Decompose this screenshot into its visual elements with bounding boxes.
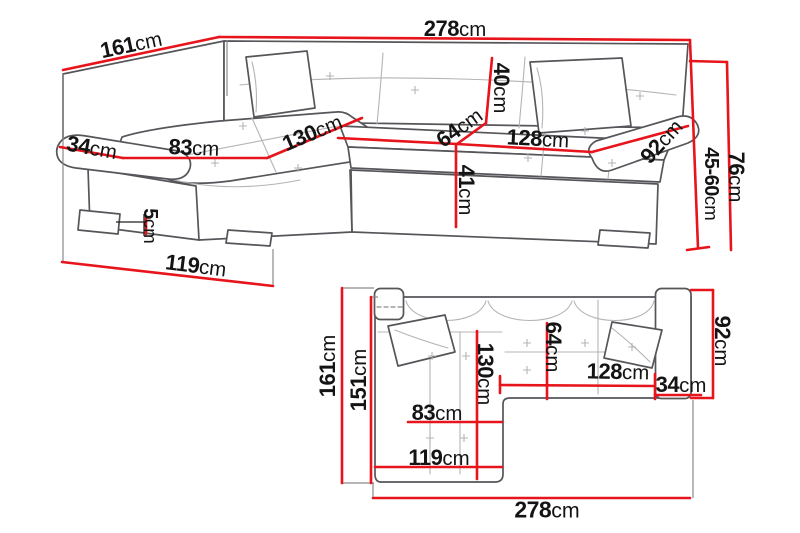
dim-label-total-width-plan: 278cm bbox=[514, 496, 579, 522]
dim-value: 64 bbox=[541, 322, 566, 347]
dim-label-chaise-length-plan: 130cm bbox=[473, 343, 498, 405]
dim-label-text: 45-60cm bbox=[700, 147, 722, 220]
dim-label-armrest-width-plan: 34cm bbox=[656, 372, 707, 397]
dim-unit: cm bbox=[88, 137, 119, 164]
dim-unit: cm bbox=[317, 335, 340, 362]
dim-value: 161 bbox=[98, 31, 138, 63]
dim-value: 92 bbox=[710, 316, 735, 340]
dim-unit: cm bbox=[551, 498, 580, 522]
dim-label-total-depth-plan: 161cm bbox=[315, 335, 340, 397]
dim-label-seat-front-height-perspective: 41cm bbox=[454, 165, 479, 216]
dim-unit: cm bbox=[701, 196, 722, 221]
dim-label-text: 34cm bbox=[656, 372, 707, 397]
dim-unit: cm bbox=[459, 18, 486, 41]
pillow-right bbox=[530, 58, 631, 133]
dim-value: 34 bbox=[656, 372, 681, 397]
dim-label-text: 76cm bbox=[724, 152, 749, 203]
dim-value: 128 bbox=[506, 124, 543, 151]
sofa-leg bbox=[598, 230, 650, 248]
dim-value: 278 bbox=[514, 496, 552, 522]
dim-label-text: 119cm bbox=[408, 445, 469, 470]
dim-value: 83 bbox=[168, 134, 193, 160]
dim-label-seat-depth-plan: 64cm bbox=[541, 322, 566, 373]
dim-label-body-depth-plan: 151cm bbox=[346, 349, 371, 411]
dim-unit: cm bbox=[710, 339, 733, 366]
dim-unit: cm bbox=[679, 374, 706, 397]
dim-unit: cm bbox=[192, 137, 220, 161]
sofa-dimension-diagram: 278cm161cm34cm83cm130cm64cm40cm41cm128cm… bbox=[0, 0, 800, 533]
dim-unit: cm bbox=[473, 378, 496, 405]
dim-unit: cm bbox=[442, 447, 469, 470]
dim-value: 119 bbox=[408, 445, 442, 470]
dim-value: 76 bbox=[724, 152, 749, 176]
dim-label-leg-height-perspective: 5cm bbox=[139, 208, 161, 243]
dim-unit: cm bbox=[541, 345, 564, 372]
dim-label-seat-width-perspective: 128cm bbox=[506, 124, 570, 152]
dim-unit: cm bbox=[435, 402, 462, 425]
dim-unit: cm bbox=[140, 219, 161, 244]
dim-unit: cm bbox=[198, 255, 228, 281]
dim-value: 130 bbox=[473, 343, 498, 378]
dim-label-text: 64cm bbox=[541, 322, 566, 373]
dimension-line bbox=[690, 61, 727, 62]
dim-label-chaise-seat-width-plan: 83cm bbox=[412, 400, 463, 425]
dimension-line bbox=[690, 40, 698, 248]
dim-unit: cm bbox=[724, 175, 747, 202]
dim-label-total-height-perspective: 76cm bbox=[724, 152, 749, 203]
dimension-line bbox=[500, 385, 655, 386]
diagram-canvas: 278cm161cm34cm83cm130cm64cm40cm41cm128cm… bbox=[0, 0, 800, 533]
dim-label-text: 5cm bbox=[139, 208, 161, 243]
dim-label-text: 278cm bbox=[424, 16, 486, 41]
dim-value: 119 bbox=[164, 249, 201, 278]
dim-value: 40 bbox=[489, 63, 514, 87]
dim-label-text: 41cm bbox=[454, 165, 479, 216]
dim-label-armrest-length-plan: 92cm bbox=[710, 316, 735, 367]
dim-label-text: 40cm bbox=[489, 63, 514, 114]
dim-unit: cm bbox=[622, 361, 650, 384]
plan-left-armrest bbox=[375, 289, 404, 320]
dim-value: 83 bbox=[412, 400, 436, 425]
dim-label-text: 83cm bbox=[168, 134, 220, 161]
dim-value: 5 bbox=[139, 208, 161, 219]
dim-label-text: 128cm bbox=[587, 358, 650, 384]
dim-label-text: 83cm bbox=[412, 400, 463, 425]
sofa-leg bbox=[78, 210, 120, 234]
dim-label-text: 161cm bbox=[315, 335, 340, 397]
dim-label-text: 278cm bbox=[514, 496, 579, 522]
dim-value: 161 bbox=[315, 362, 340, 397]
dim-value: 128 bbox=[587, 358, 623, 384]
dim-unit: cm bbox=[133, 28, 164, 56]
dim-value: 41 bbox=[454, 165, 479, 189]
dim-label-chaise-width-plan: 119cm bbox=[408, 445, 469, 470]
dim-unit: cm bbox=[489, 86, 512, 113]
dim-value: 45-60 bbox=[700, 147, 722, 196]
dim-unit: cm bbox=[348, 349, 371, 376]
dim-unit: cm bbox=[541, 128, 569, 152]
dim-label-total-width-perspective: 278cm bbox=[424, 16, 486, 41]
dim-label-armrest-height-range-perspective: 45-60cm bbox=[700, 147, 722, 220]
dim-value: 278 bbox=[424, 16, 459, 41]
dim-label-seat-width-plan: 128cm bbox=[587, 358, 650, 384]
dim-label-text: 128cm bbox=[506, 124, 570, 152]
dim-label-chaise-seat-width-perspective: 83cm bbox=[168, 134, 220, 161]
dim-value: 151 bbox=[346, 376, 371, 411]
dim-label-text: 92cm bbox=[710, 316, 735, 367]
dim-label-text: 151cm bbox=[346, 349, 371, 411]
dimension-line bbox=[687, 247, 709, 250]
sofa-leg bbox=[226, 230, 272, 246]
dim-label-text: 119cm bbox=[164, 249, 228, 281]
dim-label-chaise-outer-length-perspective: 119cm bbox=[164, 249, 228, 281]
dim-unit: cm bbox=[454, 188, 477, 215]
dim-label-text: 130cm bbox=[473, 343, 498, 405]
dim-label-backrest-height-perspective: 40cm bbox=[489, 63, 514, 114]
